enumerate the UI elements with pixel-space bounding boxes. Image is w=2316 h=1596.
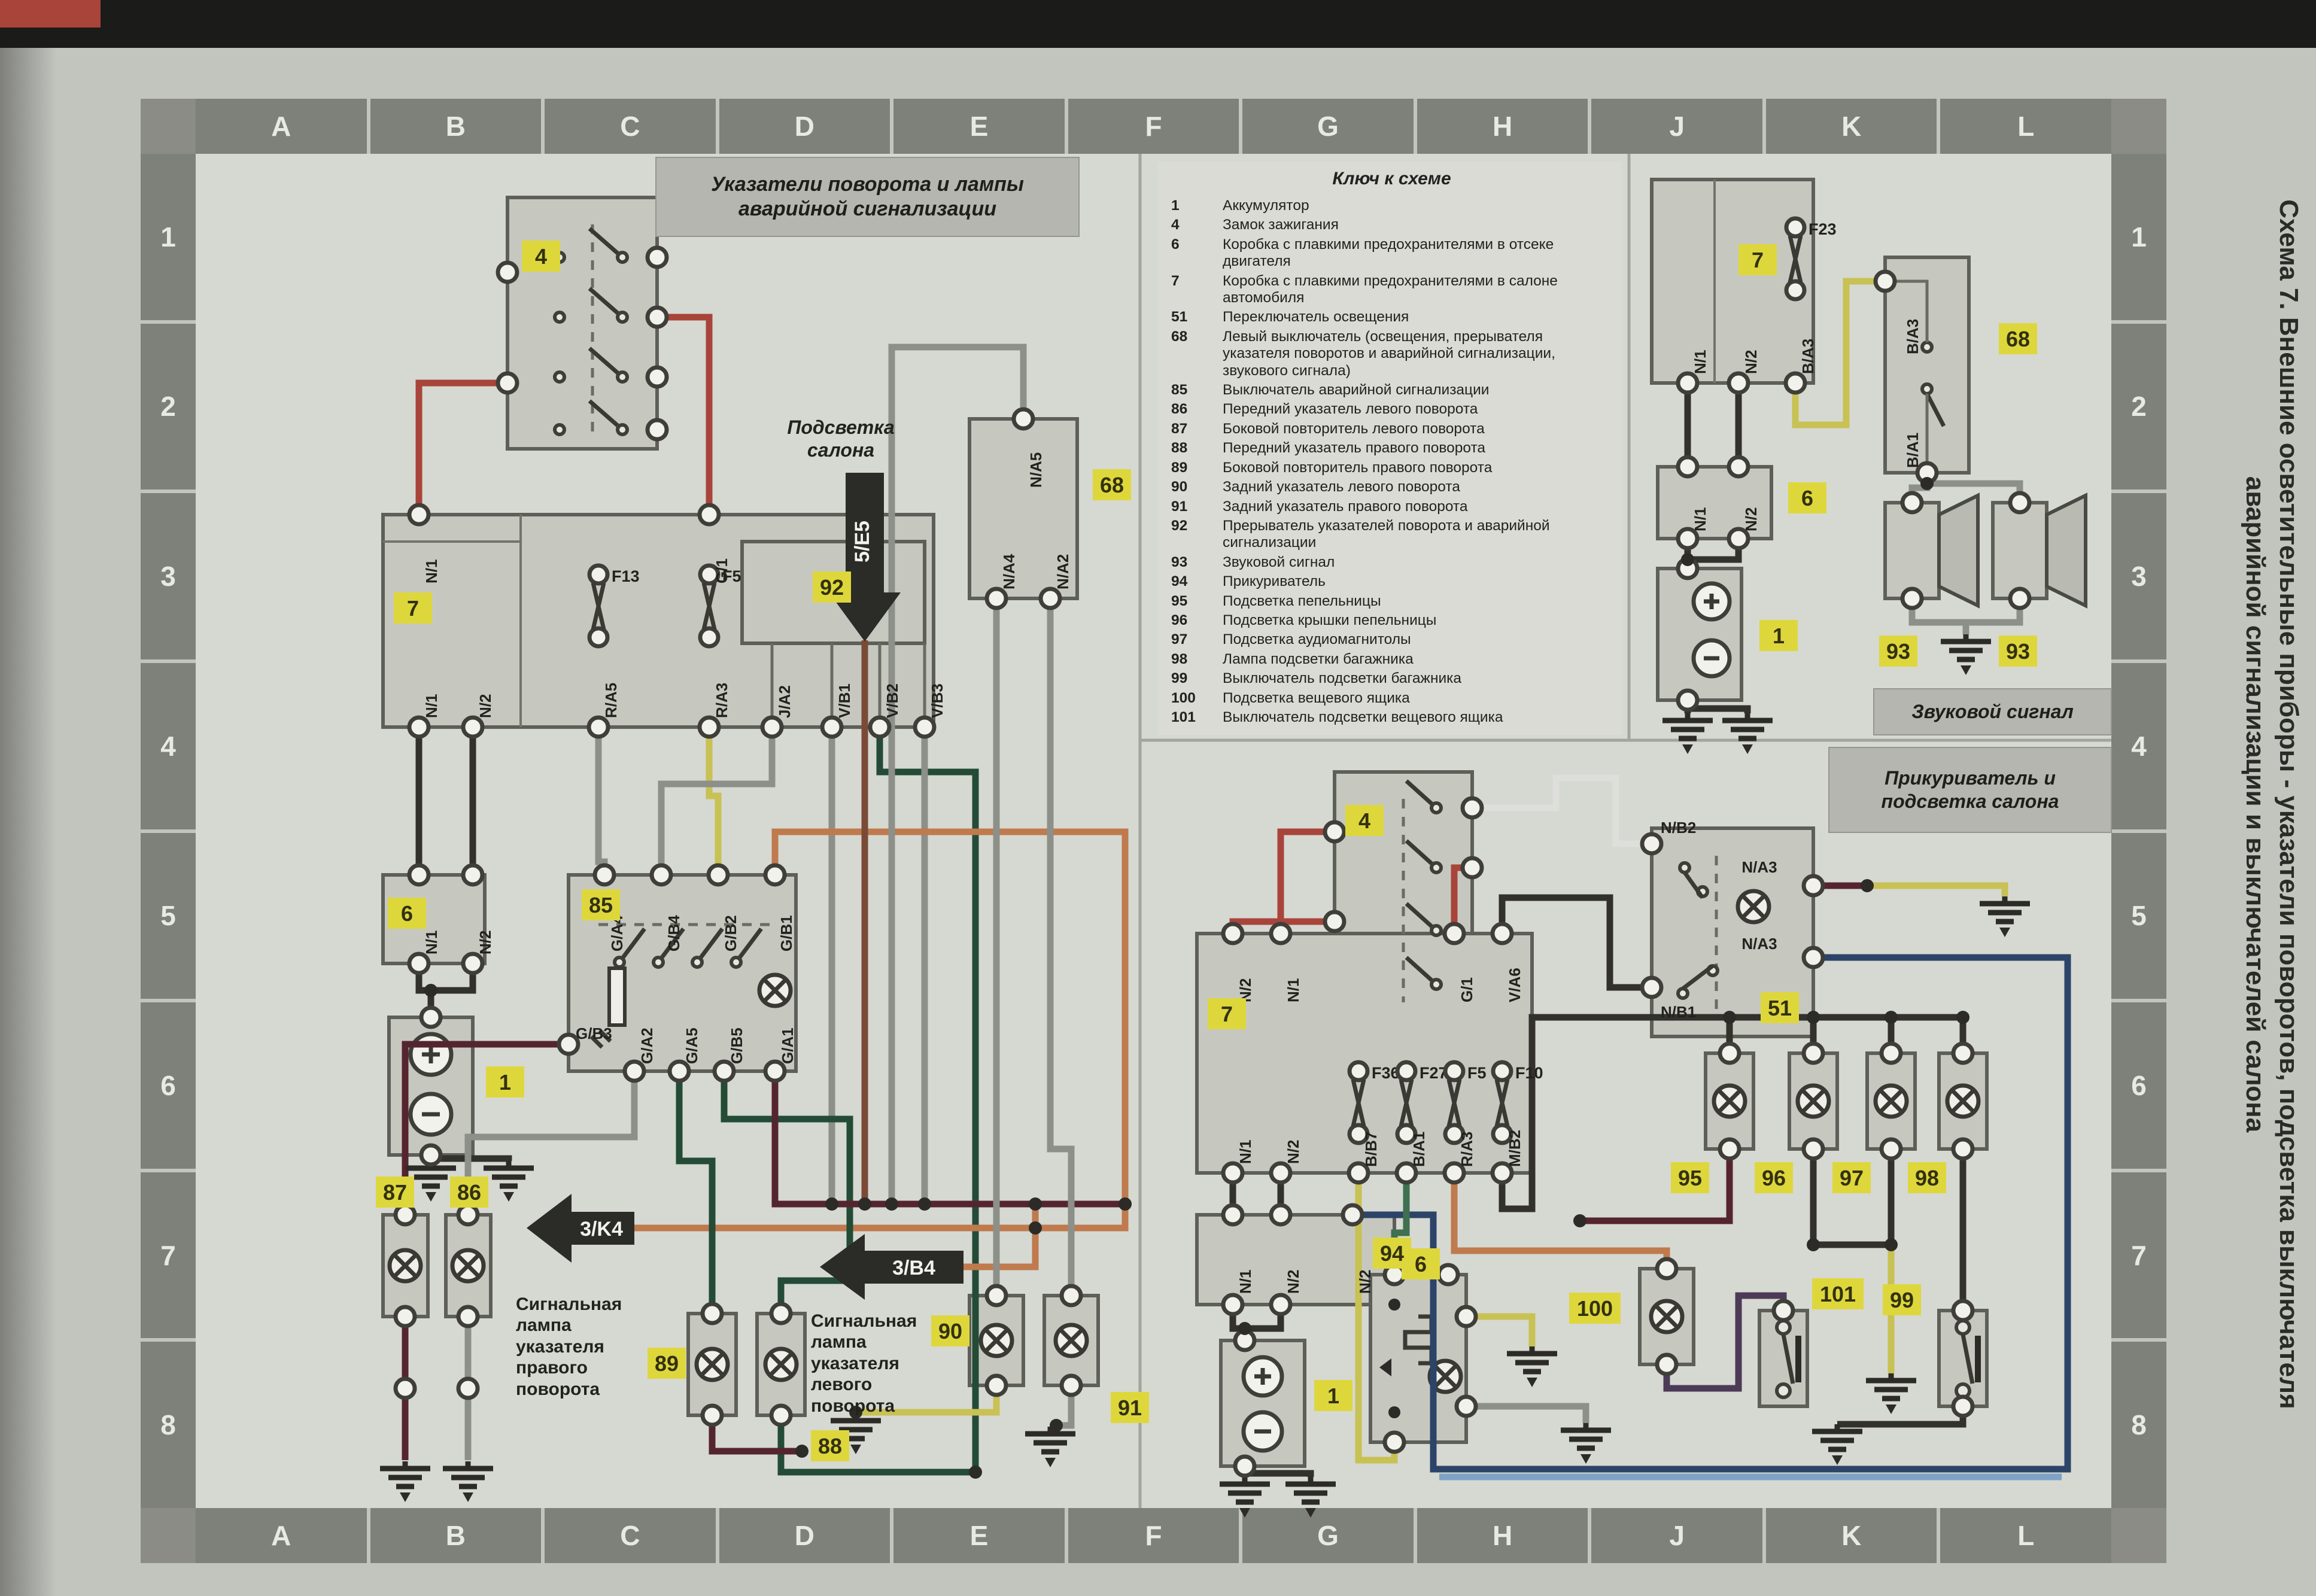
svg-text:N/2: N/2 bbox=[476, 931, 494, 954]
ground-icon bbox=[1507, 1346, 1557, 1387]
legend-item: 101 Выключатель подсветки вещевого ящика bbox=[1171, 709, 1612, 726]
left-circuit: F13 F5 bbox=[376, 197, 1149, 1502]
svg-text:3/B4: 3/B4 bbox=[892, 1257, 935, 1279]
legend-item-number: 1 bbox=[1171, 197, 1223, 214]
legend-item: 68 Левый выключатель (освещения, прерыва… bbox=[1171, 329, 1612, 379]
legend-item: 85 Выключатель аварийной сигнализации bbox=[1171, 382, 1612, 399]
svg-text:68: 68 bbox=[1100, 473, 1124, 497]
svg-text:7: 7 bbox=[407, 596, 419, 621]
lamp-icon bbox=[1714, 1086, 1745, 1117]
scheme-title-rotated: Схема 7. Внешние осветительные приборы -… bbox=[2235, 71, 2305, 1538]
svg-text:101: 101 bbox=[1820, 1282, 1856, 1306]
svg-text:N/2: N/2 bbox=[1356, 1270, 1374, 1294]
legend-item-text: Коробка с плавкими предохранителями в са… bbox=[1223, 273, 1612, 307]
component-4-ignition-switch bbox=[507, 197, 657, 449]
svg-text:V/B1: V/B1 bbox=[835, 683, 853, 718]
legend-item: 92 Прерыватель указателей поворота и ава… bbox=[1171, 518, 1612, 552]
legend-items: 1 Аккумулятор 4 Замок зажигания 6 Коробк… bbox=[1171, 197, 1612, 726]
legend-item-number: 68 bbox=[1171, 329, 1223, 379]
svg-text:N/A4: N/A4 bbox=[1000, 554, 1018, 589]
svg-text:N/B1: N/B1 bbox=[1661, 1003, 1696, 1021]
switch-illumination-lamp-icon bbox=[1738, 891, 1769, 922]
svg-text:85: 85 bbox=[589, 893, 613, 917]
lamp-icon bbox=[452, 1250, 484, 1281]
svg-text:93: 93 bbox=[2006, 639, 2030, 664]
legend-item-text: Передний указатель левого поворота bbox=[1223, 401, 1612, 418]
svg-text:7: 7 bbox=[1752, 248, 1764, 272]
legend-item: 86 Передний указатель левого поворота bbox=[1171, 401, 1612, 418]
legend-item-number: 96 bbox=[1171, 612, 1223, 629]
legend-item: 89 Боковой повторитель правого поворота bbox=[1171, 460, 1612, 476]
lamp-icon bbox=[1798, 1086, 1829, 1117]
legend-item-text: Коробка с плавкими предохранителями в от… bbox=[1223, 236, 1612, 270]
legend-item-number: 99 bbox=[1171, 670, 1223, 687]
svg-text:68: 68 bbox=[2006, 327, 2030, 351]
legend-item: 93 Звуковой сигнал bbox=[1171, 554, 1612, 571]
svg-text:6: 6 bbox=[1801, 486, 1813, 510]
scheme-title-line1: Схема 7. Внешние осветительные приборы -… bbox=[2272, 71, 2305, 1538]
svg-text:87: 87 bbox=[383, 1180, 407, 1205]
svg-text:5/E5: 5/E5 bbox=[851, 521, 874, 563]
legend-item-text: Звуковой сигнал bbox=[1223, 554, 1612, 571]
hazard-indicator-lamp-icon bbox=[759, 975, 791, 1006]
legend-item-number: 85 bbox=[1171, 382, 1223, 399]
svg-text:G/B1: G/B1 bbox=[777, 915, 795, 951]
svg-text:N/1: N/1 bbox=[1691, 350, 1709, 374]
lamp-icon bbox=[765, 1349, 797, 1380]
ground-icon bbox=[1662, 713, 1713, 754]
svg-text:F5: F5 bbox=[1467, 1064, 1487, 1082]
legend-item-text: Подсветка вещевого ящика bbox=[1223, 690, 1612, 707]
legend-item-text: Прикуриватель bbox=[1223, 573, 1612, 590]
right-top-circuit: F23 N/1 N/2 B/A3 B/A3 B/A1 N/1 N/2 bbox=[1652, 180, 2086, 754]
legend-item-text: Выключатель аварийной сигнализации bbox=[1223, 382, 1612, 399]
svg-text:94: 94 bbox=[1380, 1241, 1404, 1266]
resistor-icon bbox=[609, 968, 625, 1025]
svg-text:V/A6: V/A6 bbox=[1506, 968, 1524, 1002]
legend-item-number: 93 bbox=[1171, 554, 1223, 571]
legend-item-text: Выключатель подсветки багажника bbox=[1223, 670, 1612, 687]
svg-text:N/A3: N/A3 bbox=[1741, 858, 1777, 876]
svg-text:B/A1: B/A1 bbox=[1904, 433, 1922, 468]
svg-text:90: 90 bbox=[938, 1319, 962, 1343]
ground-icon bbox=[1812, 1424, 1862, 1465]
right-bottom-circuit: F36 F27 F5 F10 bbox=[1197, 772, 2068, 1518]
legend-item-text: Выключатель подсветки вещевого ящика bbox=[1223, 709, 1612, 726]
svg-text:N/1: N/1 bbox=[1691, 507, 1709, 531]
svg-text:F10: F10 bbox=[1515, 1064, 1543, 1082]
ground-icon bbox=[443, 1461, 493, 1502]
legend-item-text: Боковой повторитель правого поворота bbox=[1223, 460, 1612, 476]
svg-text:N/1: N/1 bbox=[1236, 1140, 1254, 1164]
svg-text:J/A2: J/A2 bbox=[776, 685, 794, 718]
svg-text:N/1: N/1 bbox=[423, 560, 440, 583]
legend-item: 99 Выключатель подсветки багажника bbox=[1171, 670, 1612, 687]
legend-item-text: Лампа подсветки багажника bbox=[1223, 651, 1612, 668]
lamp-icon bbox=[1651, 1301, 1682, 1332]
horn-speaker-icon bbox=[1939, 495, 1978, 606]
component-94-cigarette-lighter bbox=[1370, 1275, 1466, 1442]
svg-text:1: 1 bbox=[1327, 1384, 1339, 1408]
svg-text:R/A5: R/A5 bbox=[602, 683, 620, 718]
svg-text:B/A1: B/A1 bbox=[1410, 1132, 1428, 1167]
legend-item-text: Подсветка пепельницы bbox=[1223, 593, 1612, 610]
svg-text:G/B2: G/B2 bbox=[722, 915, 740, 951]
svg-text:N/1: N/1 bbox=[423, 694, 440, 718]
svg-text:G/B5: G/B5 bbox=[728, 1027, 746, 1064]
svg-text:N/2: N/2 bbox=[1742, 507, 1760, 531]
legend-item-text: Задний указатель левого поворота bbox=[1223, 479, 1612, 495]
section-title-horn: Звуковой сигнал bbox=[1873, 688, 2112, 735]
legend-item: 88 Передний указатель правого поворота bbox=[1171, 440, 1612, 457]
svg-text:G/A5: G/A5 bbox=[683, 1027, 701, 1064]
svg-text:B/B7: B/B7 bbox=[1362, 1132, 1380, 1167]
legend-item-text: Подсветка крышки пепельницы bbox=[1223, 612, 1612, 629]
lamp-icon bbox=[390, 1250, 421, 1281]
ground-icon bbox=[1941, 634, 1991, 675]
svg-text:G/A1: G/A1 bbox=[779, 1027, 797, 1064]
ground-icon bbox=[1980, 896, 2030, 937]
legend-item-number: 91 bbox=[1171, 498, 1223, 515]
svg-text:G/1: G/1 bbox=[713, 558, 731, 583]
svg-text:1: 1 bbox=[499, 1070, 511, 1095]
svg-text:3/K4: 3/K4 bbox=[580, 1218, 623, 1241]
annotation-left-turn-lamp: Сигнальная лампа указателя левого поворо… bbox=[811, 1311, 934, 1416]
legend: Ключ к схеме 1 Аккумулятор 4 Замок зажиг… bbox=[1158, 162, 1622, 735]
section-title-lighter: Прикуриватель и подсветка салона bbox=[1828, 747, 2112, 833]
legend-item-number: 101 bbox=[1171, 709, 1223, 726]
lamp-icon bbox=[1056, 1325, 1087, 1356]
svg-text:N/2: N/2 bbox=[1284, 1140, 1302, 1164]
legend-item-number: 92 bbox=[1171, 518, 1223, 552]
legend-item: 95 Подсветка пепельницы bbox=[1171, 593, 1612, 610]
legend-item-number: 87 bbox=[1171, 421, 1223, 437]
legend-item-number: 97 bbox=[1171, 631, 1223, 648]
ground-icon bbox=[1866, 1373, 1916, 1414]
svg-text:98: 98 bbox=[1915, 1166, 1939, 1190]
legend-item-text: Левый выключатель (освещения, прерывател… bbox=[1223, 329, 1612, 379]
legend-item-number: 98 bbox=[1171, 651, 1223, 668]
legend-item: 94 Прикуриватель bbox=[1171, 573, 1612, 590]
legend-item-number: 90 bbox=[1171, 479, 1223, 495]
svg-text:4: 4 bbox=[1358, 808, 1370, 833]
section-title-text: Прикуриватель и подсветка салона bbox=[1829, 767, 2111, 813]
section-title-turn-signals: Указатели поворота и лампы аварийной сиг… bbox=[655, 157, 1080, 237]
legend-item: 90 Задний указатель левого поворота bbox=[1171, 479, 1612, 495]
legend-item: 96 Подсветка крышки пепельницы bbox=[1171, 612, 1612, 629]
svg-text:N/A2: N/A2 bbox=[1054, 554, 1072, 589]
ground-icon bbox=[380, 1461, 430, 1502]
svg-text:96: 96 bbox=[1762, 1166, 1786, 1190]
legend-item: 6 Коробка с плавкими предохранителями в … bbox=[1171, 236, 1612, 270]
svg-text:V/B2: V/B2 bbox=[883, 683, 901, 718]
horn-speaker-icon bbox=[2047, 495, 2086, 606]
legend-item-number: 51 bbox=[1171, 309, 1223, 326]
lamp-icon bbox=[1947, 1086, 1978, 1117]
legend-item: 1 Аккумулятор bbox=[1171, 197, 1612, 214]
caption-cabin-light: Подсветка салона bbox=[751, 416, 931, 462]
svg-text:F13: F13 bbox=[612, 567, 640, 585]
legend-title: Ключ к схеме bbox=[1171, 169, 1612, 189]
svg-text:N/B2: N/B2 bbox=[1661, 819, 1696, 837]
svg-text:6: 6 bbox=[1415, 1252, 1427, 1276]
legend-item: 87 Боковой повторитель левого поворота bbox=[1171, 421, 1612, 437]
svg-text:G/B3: G/B3 bbox=[576, 1025, 612, 1042]
svg-text:97: 97 bbox=[1840, 1166, 1864, 1190]
component-93-horn bbox=[1993, 503, 2047, 598]
legend-item-number: 88 bbox=[1171, 440, 1223, 457]
svg-text:B/A3: B/A3 bbox=[1904, 319, 1922, 354]
legend-item-text: Переключатель освещения bbox=[1223, 309, 1612, 326]
svg-text:7: 7 bbox=[1221, 1002, 1233, 1026]
arrow-3B4: 3/B4 bbox=[820, 1234, 964, 1300]
svg-text:N/1: N/1 bbox=[1284, 978, 1302, 1002]
component-93-horn bbox=[1885, 503, 1939, 598]
svg-text:93: 93 bbox=[1886, 639, 1910, 664]
legend-item-text: Аккумулятор bbox=[1223, 197, 1612, 214]
arrow-3K4: 3/K4 bbox=[527, 1194, 634, 1263]
legend-item-text: Задний указатель правого поворота bbox=[1223, 498, 1612, 515]
svg-text:N/1: N/1 bbox=[423, 931, 440, 954]
svg-text:F27: F27 bbox=[1420, 1064, 1448, 1082]
legend-item: 51 Переключатель освещения bbox=[1171, 309, 1612, 326]
svg-text:86: 86 bbox=[457, 1180, 481, 1205]
scheme-title-line2: аварийной сигнализации и выключателей са… bbox=[2238, 71, 2271, 1538]
svg-text:R/A3: R/A3 bbox=[713, 683, 731, 718]
svg-text:N/2: N/2 bbox=[1284, 1270, 1302, 1294]
svg-text:R/A3: R/A3 bbox=[1458, 1132, 1476, 1167]
legend-item: 98 Лампа подсветки багажника bbox=[1171, 651, 1612, 668]
svg-text:N/A5: N/A5 bbox=[1027, 452, 1045, 488]
svg-text:92: 92 bbox=[820, 575, 844, 600]
legend-item: 4 Замок зажигания bbox=[1171, 217, 1612, 233]
svg-text:6: 6 bbox=[401, 901, 413, 926]
legend-item-number: 89 bbox=[1171, 460, 1223, 476]
svg-text:G/B4: G/B4 bbox=[665, 915, 683, 951]
annotation-right-turn-lamp: Сигнальная лампа указателя правого повор… bbox=[516, 1294, 633, 1400]
ground-icon bbox=[1722, 713, 1773, 754]
svg-text:N/1: N/1 bbox=[1236, 1270, 1254, 1294]
section-title-text: Указатели поворота и лампы аварийной сиг… bbox=[656, 172, 1078, 222]
ground-icon bbox=[484, 1161, 534, 1202]
svg-text:G/A2: G/A2 bbox=[638, 1027, 656, 1064]
svg-text:N/2: N/2 bbox=[476, 694, 494, 718]
legend-item-number: 100 bbox=[1171, 690, 1223, 707]
svg-text:F36: F36 bbox=[1372, 1064, 1400, 1082]
svg-text:1: 1 bbox=[1773, 624, 1785, 648]
ground-icon bbox=[1561, 1423, 1611, 1464]
ground-icon bbox=[1220, 1477, 1270, 1518]
svg-text:99: 99 bbox=[1890, 1288, 1914, 1312]
svg-text:91: 91 bbox=[1118, 1396, 1142, 1420]
legend-item-number: 7 bbox=[1171, 273, 1223, 307]
legend-item-number: 94 bbox=[1171, 573, 1223, 590]
legend-item-number: 86 bbox=[1171, 401, 1223, 418]
svg-text:51: 51 bbox=[1768, 996, 1792, 1020]
legend-item-text: Передний указатель правого поворота bbox=[1223, 440, 1612, 457]
svg-text:G/1: G/1 bbox=[1458, 977, 1476, 1002]
svg-text:89: 89 bbox=[655, 1351, 679, 1376]
legend-item-number: 6 bbox=[1171, 236, 1223, 270]
ground-icon bbox=[1285, 1477, 1336, 1518]
legend-item-text: Прерыватель указателей поворота и аварий… bbox=[1223, 518, 1612, 552]
wiring-diagram-page: ABCDEFGHJKL ABCDEFGHJKL 12345678 1234567… bbox=[0, 0, 2316, 1596]
svg-text:88: 88 bbox=[818, 1434, 842, 1458]
svg-text:N/2: N/2 bbox=[1742, 350, 1760, 374]
svg-text:B/A3: B/A3 bbox=[1799, 339, 1817, 374]
legend-item-text: Боковой повторитель левого поворота bbox=[1223, 421, 1612, 437]
legend-item: 91 Задний указатель правого поворота bbox=[1171, 498, 1612, 515]
svg-text:4: 4 bbox=[535, 244, 547, 269]
lamp-icon bbox=[697, 1349, 728, 1380]
ground-icon bbox=[1025, 1427, 1075, 1467]
legend-item-text: Замок зажигания bbox=[1223, 217, 1612, 233]
svg-text:M/B2: M/B2 bbox=[1506, 1130, 1524, 1167]
section-title-text: Звуковой сигнал bbox=[1911, 700, 2074, 723]
svg-text:V/B3: V/B3 bbox=[928, 683, 946, 718]
lamp-icon bbox=[981, 1325, 1012, 1356]
svg-text:95: 95 bbox=[1678, 1166, 1702, 1190]
legend-item: 7 Коробка с плавкими предохранителями в … bbox=[1171, 273, 1612, 307]
legend-item: 97 Подсветка аудиомагнитолы bbox=[1171, 631, 1612, 648]
lamp-icon bbox=[1876, 1086, 1907, 1117]
svg-text:N/A3: N/A3 bbox=[1741, 935, 1777, 953]
legend-item-number: 4 bbox=[1171, 217, 1223, 233]
svg-text:F23: F23 bbox=[1809, 220, 1837, 238]
legend-item: 100 Подсветка вещевого ящика bbox=[1171, 690, 1612, 707]
legend-item-number: 95 bbox=[1171, 593, 1223, 610]
svg-text:100: 100 bbox=[1577, 1296, 1613, 1321]
legend-item-text: Подсветка аудиомагнитолы bbox=[1223, 631, 1612, 648]
